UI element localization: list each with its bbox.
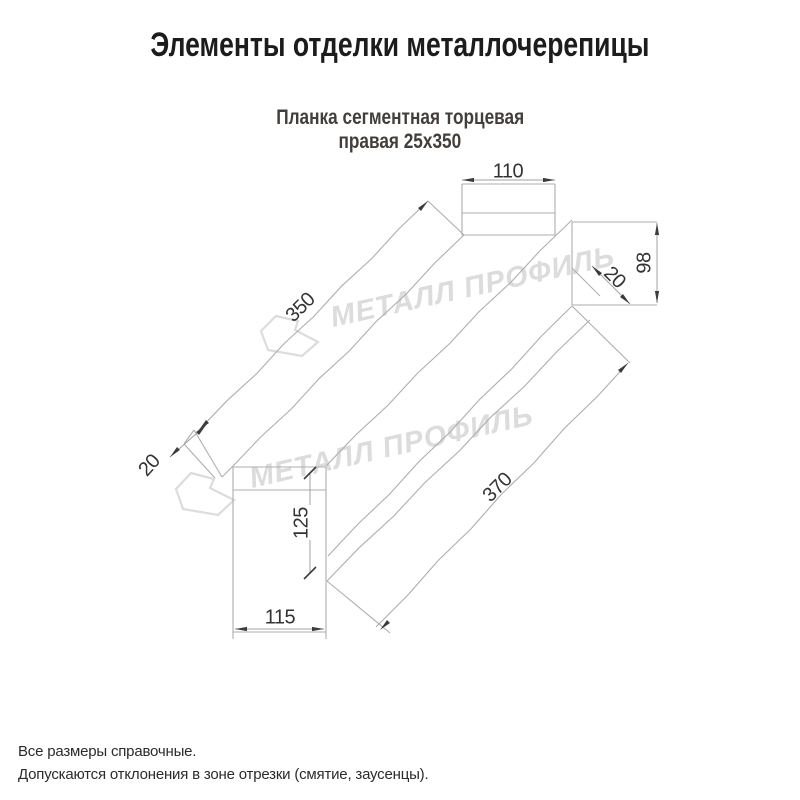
- dimension-label: 20: [134, 450, 165, 481]
- page: { "header": { "title": "Элементы отделки…: [0, 0, 800, 800]
- dimension-label: 370: [478, 468, 516, 506]
- dimension-arrow: [418, 201, 428, 211]
- drawing-line: [222, 466, 233, 477]
- dimension-arrow: [655, 223, 659, 235]
- dimension-arrow: [618, 363, 628, 373]
- dimension-label: 98: [633, 252, 655, 274]
- footnote-line-1: Все размеры справочные.: [18, 740, 778, 763]
- dimension-arrow: [655, 291, 659, 303]
- dimension-arrow: [235, 627, 247, 631]
- dimension-arrow: [199, 420, 209, 430]
- dimension-label: 125: [290, 507, 312, 539]
- dimension-label: 110: [493, 160, 524, 182]
- dimension-arrow: [170, 447, 180, 457]
- dimension-label: 115: [265, 606, 296, 628]
- drawing-line: [184, 444, 215, 478]
- drawing-line: [572, 306, 630, 363]
- drawing-line: [327, 581, 390, 633]
- dimension-arrow: [462, 178, 474, 182]
- technical-drawing: МЕТАЛЛ ПРОФИЛЬМЕТАЛЛ ПРОФИЛЬ110982035037…: [0, 0, 800, 800]
- watermark-logo: [176, 473, 234, 515]
- dimension-arrow: [620, 294, 630, 304]
- dimension-arrow: [196, 425, 206, 435]
- drawing-line: [428, 201, 464, 235]
- watermark-text: МЕТАЛЛ ПРОФИЛЬ: [328, 240, 618, 334]
- footnote-line-2: Допускаются отклонения в зоне отрезки (с…: [18, 763, 778, 786]
- dimension-label: 350: [281, 288, 319, 326]
- watermark-logo: [261, 316, 318, 356]
- dimension-arrow: [312, 627, 324, 631]
- footnotes: Все размеры справочные. Допускаются откл…: [18, 740, 778, 786]
- dimension-arrow: [543, 178, 555, 182]
